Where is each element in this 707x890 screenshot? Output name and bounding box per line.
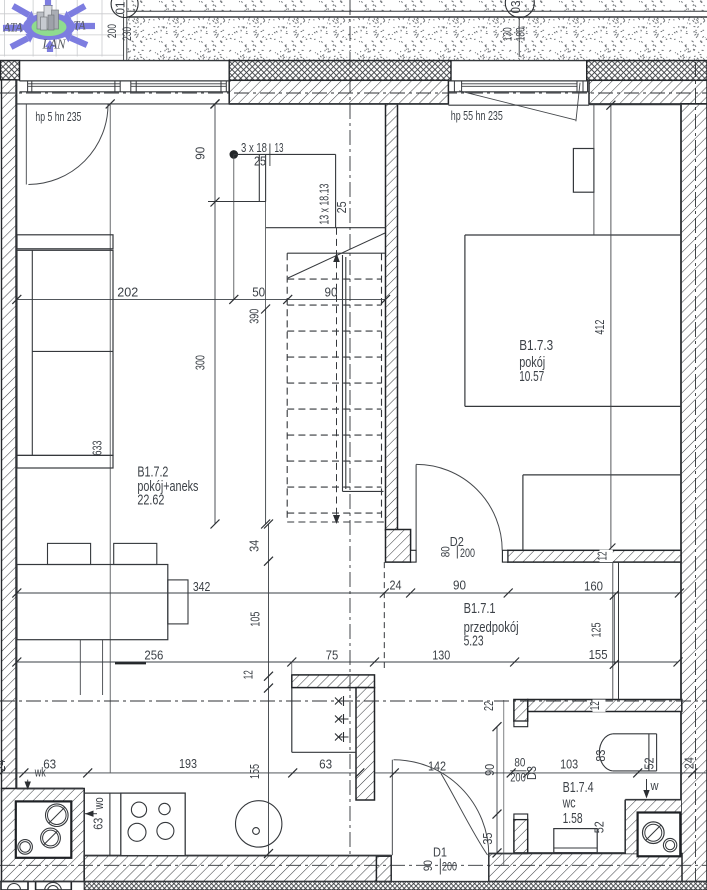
svg-text:130: 130 [432,648,450,663]
svg-text:300: 300 [192,355,207,370]
svg-text:35: 35 [480,833,495,845]
svg-text:10.57: 10.57 [519,368,544,385]
svg-text:22.62: 22.62 [137,492,164,509]
svg-text:52: 52 [641,758,656,770]
svg-text:5.23: 5.23 [464,633,484,650]
svg-text:12: 12 [587,701,602,710]
svg-text:103: 103 [560,756,578,771]
svg-text:25: 25 [334,201,349,213]
svg-text:90: 90 [421,860,435,871]
svg-text:B1.7.3: B1.7.3 [519,337,553,354]
svg-text:202: 202 [117,285,138,300]
svg-text:90: 90 [482,764,497,776]
svg-text:90: 90 [193,147,208,160]
svg-text:155: 155 [589,647,608,662]
svg-text:LAN: LAN [42,38,66,53]
svg-text:105: 105 [248,612,263,627]
svg-text:193: 193 [179,756,197,771]
svg-text:160: 160 [584,579,603,594]
svg-text:200: 200 [460,546,475,560]
svg-text:412: 412 [592,320,607,335]
svg-text:24: 24 [0,760,8,772]
svg-text:24: 24 [682,757,697,769]
svg-text:155: 155 [247,764,262,779]
svg-text:180: 180 [514,27,528,41]
svg-text:22: 22 [481,701,496,711]
svg-text:25: 25 [254,154,266,169]
svg-text:75: 75 [326,648,339,663]
svg-text:w: w [650,778,659,793]
svg-text:256: 256 [144,648,163,663]
svg-text:D3: D3 [524,766,539,780]
svg-text:52: 52 [592,821,607,833]
svg-text:633: 633 [90,441,105,456]
svg-text:13 x 18.13: 13 x 18.13 [316,184,331,225]
svg-text:12: 12 [595,552,610,561]
svg-text:24: 24 [390,577,402,592]
svg-text:50: 50 [252,285,265,300]
svg-text:342: 342 [193,579,211,594]
svg-text:1.58: 1.58 [563,810,583,827]
svg-text:63: 63 [319,757,332,772]
svg-text:200: 200 [105,24,119,38]
svg-text:13: 13 [275,140,284,155]
svg-text:hp 55 hn 235: hp 55 hn 235 [451,108,503,123]
svg-text:130: 130 [501,27,515,41]
svg-text:390: 390 [247,309,262,324]
svg-text:125: 125 [589,623,604,638]
svg-text:wk: wk [34,765,46,780]
svg-text:200: 200 [442,860,457,874]
svg-text:03: 03 [509,0,523,13]
svg-text:B1.7.4: B1.7.4 [563,779,594,796]
svg-text:wc: wc [562,795,576,812]
svg-text:wo: wo [91,797,106,810]
svg-text:80: 80 [438,546,452,557]
svg-text:D1: D1 [433,845,447,860]
svg-text:230: 230 [120,27,134,41]
svg-text:12: 12 [240,670,255,679]
svg-text:83: 83 [593,750,608,762]
svg-text:ATA: ATA [3,21,23,35]
svg-text:TA: TA [74,19,86,33]
svg-text:hp 5 hn 235: hp 5 hn 235 [35,109,81,124]
svg-text:34: 34 [246,540,261,552]
svg-text:63: 63 [90,818,105,830]
svg-text:90: 90 [325,285,338,300]
svg-text:B1.7.1: B1.7.1 [464,600,496,617]
svg-text:142: 142 [428,759,446,774]
svg-text:01: 01 [114,1,128,14]
svg-text:90: 90 [453,577,466,592]
